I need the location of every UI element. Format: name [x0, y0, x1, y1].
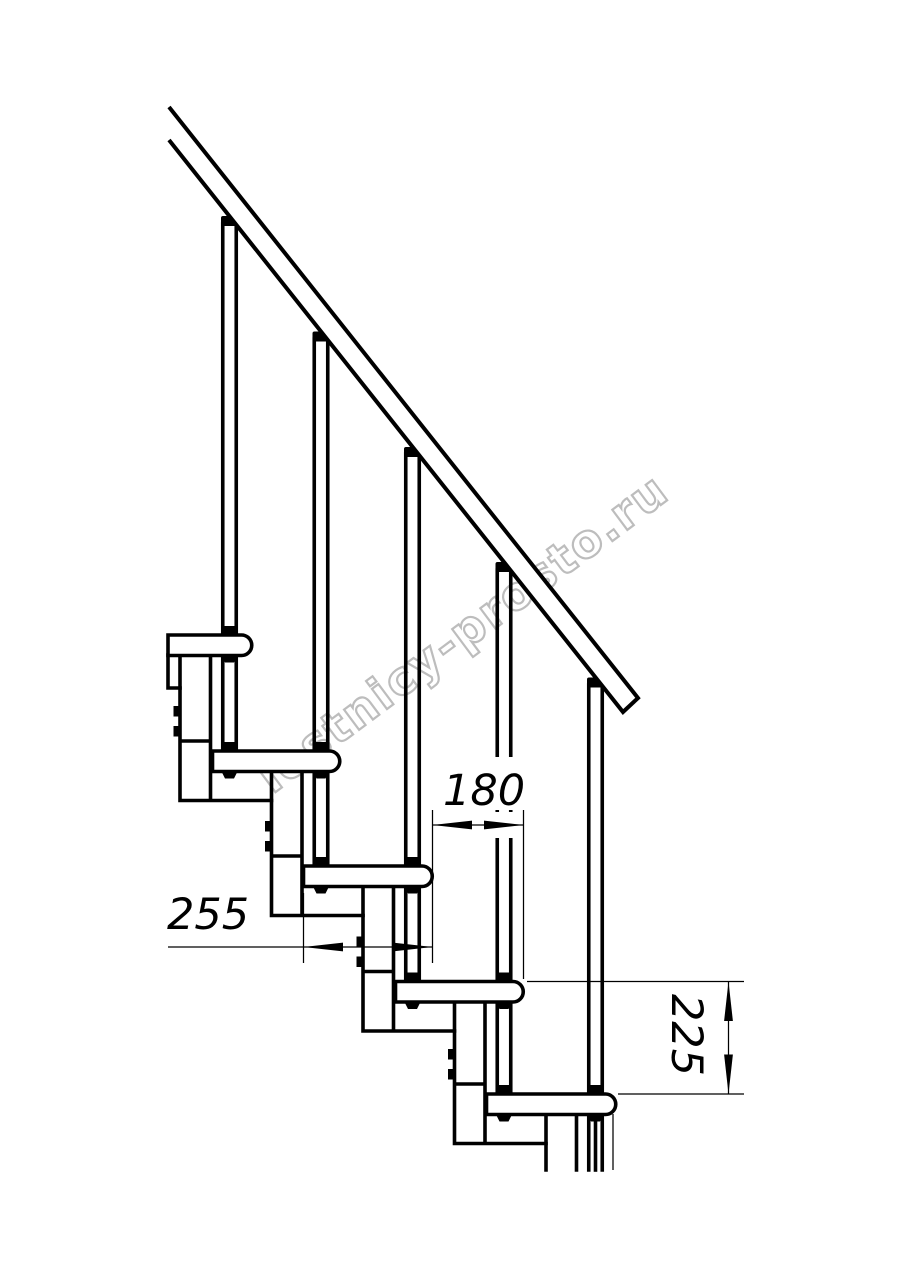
tread-3	[304, 866, 433, 887]
staircase-drawing: lestnicy-prosto.ru	[0, 0, 914, 1280]
tread-1	[168, 635, 252, 656]
drawing-canvas: lestnicy-prosto.ru	[0, 0, 914, 1280]
tread-4	[396, 982, 524, 1003]
balusters	[223, 224, 613, 1170]
dimension-rise-225: 225	[527, 982, 744, 1095]
dim-tread-depth-label: 255	[167, 890, 249, 940]
tread-2	[213, 751, 340, 772]
handrail	[169, 107, 638, 712]
dim-going-label: 180	[443, 766, 525, 816]
tread-5	[487, 1094, 616, 1115]
dim-rise-label: 225	[661, 994, 711, 1076]
